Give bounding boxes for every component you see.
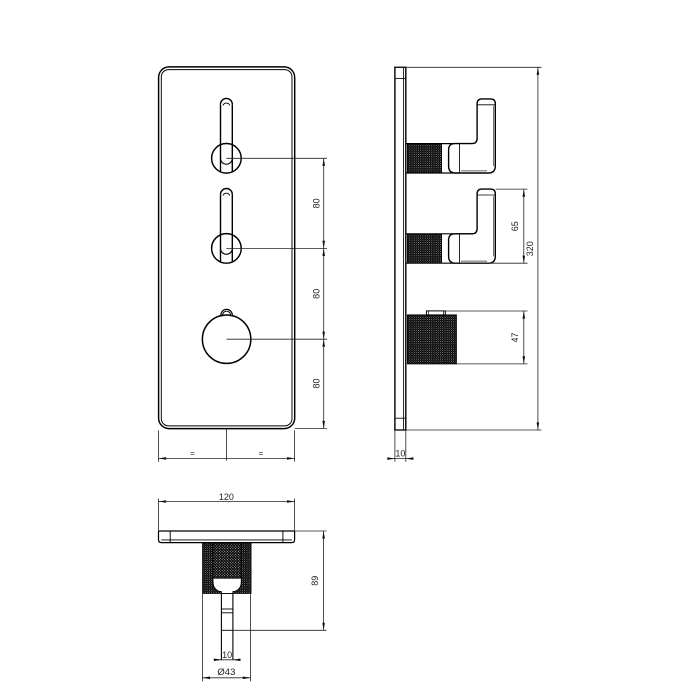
svg-text:=: = xyxy=(190,449,195,458)
svg-text:10: 10 xyxy=(222,650,232,660)
svg-text:10: 10 xyxy=(395,448,405,458)
svg-text:89: 89 xyxy=(310,576,320,586)
svg-text:=: = xyxy=(259,449,264,458)
svg-text:80: 80 xyxy=(312,289,322,299)
svg-text:65: 65 xyxy=(510,221,520,231)
svg-text:320: 320 xyxy=(525,241,535,256)
svg-text:47: 47 xyxy=(510,332,520,342)
svg-text:80: 80 xyxy=(312,198,322,208)
svg-text:Ø43: Ø43 xyxy=(217,667,235,678)
svg-text:80: 80 xyxy=(312,378,322,388)
svg-text:120: 120 xyxy=(219,492,234,502)
